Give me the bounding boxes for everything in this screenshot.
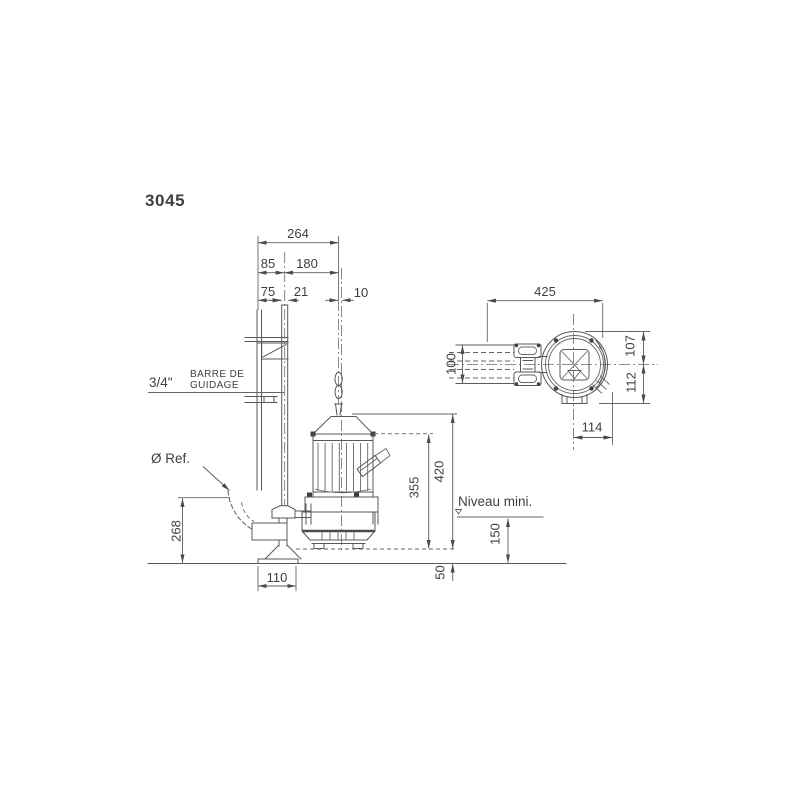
guide-bars-hidden <box>449 353 514 379</box>
dim-50: 50 <box>433 565 448 579</box>
flange-bolt <box>589 386 593 390</box>
dim-420: 420 <box>432 461 447 483</box>
dim-268: 268 <box>169 520 184 542</box>
center-wedge <box>568 371 581 379</box>
dim-10: 10 <box>354 285 368 300</box>
base-width-dimension: 110 <box>258 566 296 591</box>
discharge-stand <box>252 506 301 564</box>
elbow-dashed-inner <box>242 503 255 522</box>
pump-body <box>295 417 390 549</box>
technical-drawing: 3045 <box>0 0 800 800</box>
diameter-ref-leader <box>203 467 230 491</box>
flange-bolt <box>589 338 593 342</box>
top-view: 425 100 107 112 114 <box>444 284 659 450</box>
elbow-dashed-outer <box>228 491 253 530</box>
dim-100: 100 <box>444 353 459 375</box>
dim-110: 110 <box>267 570 288 585</box>
pump-top-view <box>542 332 610 404</box>
level-symbol <box>456 510 462 515</box>
dim-150: 150 <box>488 523 503 545</box>
holder-slot-bottom <box>519 375 537 383</box>
dim-75: 75 <box>261 284 275 299</box>
discharge-throat <box>295 504 311 524</box>
flange-bolt <box>554 338 558 342</box>
cross-brace <box>562 352 587 379</box>
diameter-ref-label: Ø Ref. <box>151 451 190 466</box>
dim-21: 21 <box>294 284 308 299</box>
holder-bolt <box>537 344 540 347</box>
guide-bar-bracket <box>258 343 288 360</box>
page: 3045 <box>0 0 800 800</box>
dim-107: 107 <box>623 335 638 357</box>
guide-claw <box>272 506 295 518</box>
stator-casing <box>302 497 378 524</box>
motor-housing <box>313 434 373 497</box>
base-plate <box>258 559 298 564</box>
side-view: 264 85 180 75 21 10 420 355 268 150 50 <box>148 226 566 591</box>
horizontal-dimensions: 264 85 180 75 21 10 <box>258 226 368 300</box>
dim-85: 85 <box>261 256 275 271</box>
flange-bolt <box>554 386 558 390</box>
guide-bar-label-2: GUIDAGE <box>190 380 239 391</box>
pipe-size-label: 3/4" <box>149 375 173 390</box>
suction-strainer <box>322 533 354 541</box>
stand-flare <box>265 545 301 559</box>
bottom-plate-feet <box>302 531 375 549</box>
dim-264: 264 <box>287 226 309 241</box>
dim-112: 112 <box>624 372 639 393</box>
dim-355: 355 <box>407 477 422 499</box>
min-level-label: Niveau mini. <box>458 494 532 509</box>
holder-slot-top <box>519 347 537 355</box>
guide-bar-label-1: BARRE DE <box>190 369 244 380</box>
holder-bolt <box>515 344 518 347</box>
holder-bolt <box>537 382 540 385</box>
outlet-stub <box>252 523 287 540</box>
dim-425: 425 <box>534 284 556 299</box>
dim-114: 114 <box>582 420 603 435</box>
model-number: 3045 <box>145 191 185 210</box>
volute-sides <box>302 512 375 531</box>
holder-bolt <box>515 382 518 385</box>
dim-180: 180 <box>296 256 318 271</box>
lifting-handle <box>313 417 373 435</box>
